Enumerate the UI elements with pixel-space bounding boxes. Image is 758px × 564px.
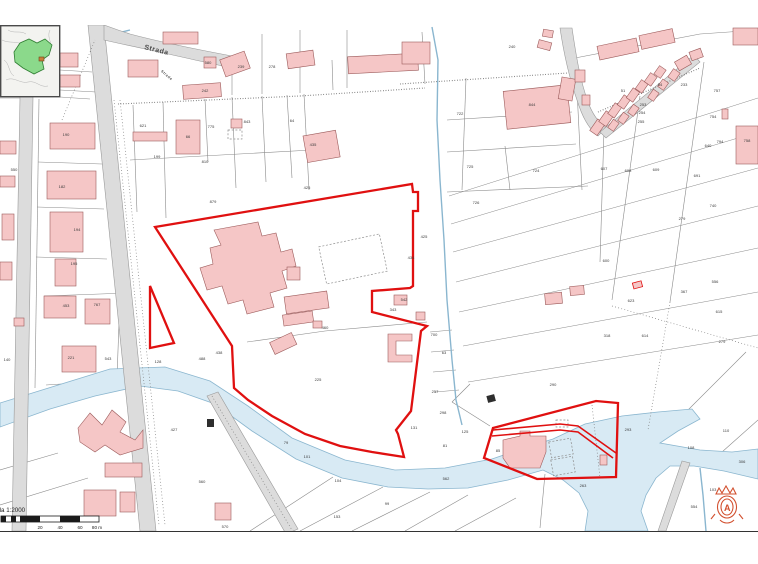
- parcel-number: 562: [443, 476, 450, 481]
- parcel-number: 242: [202, 88, 209, 93]
- parcel-number: 621: [140, 123, 147, 128]
- parcel-number: 306: [739, 459, 746, 464]
- parcel-number: 460: [322, 325, 329, 330]
- parcel-number: 453: [63, 303, 70, 308]
- parcel-number: 81: [443, 443, 448, 448]
- parcel-number: 570: [222, 524, 229, 529]
- parcel-number: 279: [679, 216, 686, 221]
- parcel-number: 427: [171, 427, 178, 432]
- parcel-number: 554: [691, 504, 698, 509]
- parcel-number: 435: [310, 142, 317, 147]
- parcel-number: 66: [186, 134, 191, 139]
- scale-tick-label: 40: [57, 525, 63, 530]
- parcel-number: 239: [238, 64, 245, 69]
- parcel-number: 63: [442, 350, 447, 355]
- scale-tick-label: 20: [37, 525, 43, 530]
- scale-text: Scala 1:2000: [0, 507, 26, 514]
- parcel-number: 700: [431, 332, 438, 337]
- cadastral-map: 8794254254345423437002254601312572986381…: [0, 0, 758, 564]
- parcel-number: 722: [457, 111, 464, 116]
- parcel-number: 740: [710, 203, 717, 208]
- parcel-number: 724: [533, 168, 540, 173]
- parcel-number: 425: [304, 185, 311, 190]
- inset-location-marker: [39, 57, 44, 61]
- parcel-number: 255: [638, 119, 645, 124]
- parcel-number: 843: [244, 119, 251, 124]
- parcel-number: 104: [335, 478, 342, 483]
- parcel-number: 754: [710, 114, 717, 119]
- parcel-number: 434: [408, 255, 415, 260]
- parcel-number: 879: [210, 199, 217, 204]
- parcel-number: 600: [603, 258, 610, 263]
- scale-tick-label: 60: [77, 525, 83, 530]
- parcel-number: 560: [199, 479, 206, 484]
- parcel-number: 233: [681, 82, 688, 87]
- parcel-number: 279: [719, 339, 726, 344]
- parcel-number: 367: [681, 289, 688, 294]
- road-name-label: Strada: [160, 69, 173, 81]
- parcel-number: 726: [473, 200, 480, 205]
- parcel-number: 51: [621, 88, 626, 93]
- parcel-number: 79: [284, 440, 289, 445]
- parcel-number: 775: [208, 124, 215, 129]
- parcel-number: 438: [216, 350, 223, 355]
- parcel-number: 844: [529, 102, 536, 107]
- parcel-number: 182: [59, 184, 66, 189]
- parcel-number: 257: [432, 389, 439, 394]
- parcel-number: 550: [11, 167, 18, 172]
- parcel-number: 608: [625, 168, 632, 173]
- parcel-number: 108: [688, 445, 695, 450]
- scale-tick-label: 80 m: [92, 525, 102, 530]
- parcel-number: 225: [315, 377, 322, 382]
- parcel-number: 131: [411, 425, 418, 430]
- parcel-number: 110: [723, 428, 730, 433]
- parcel-number: 607: [601, 166, 608, 171]
- parcel-number: 767: [94, 302, 101, 307]
- parcel-number: 757: [714, 88, 721, 93]
- parcel-number: 758: [744, 138, 751, 143]
- parcel-number: 298: [440, 410, 447, 415]
- parcel-number: 794: [717, 139, 724, 144]
- parcel-number: 263: [580, 483, 587, 488]
- parcel-number: 253: [640, 102, 647, 107]
- parcel-number: 103: [710, 487, 717, 492]
- cadastral-map-page: 8794254254345423437002254601312572986381…: [0, 0, 758, 564]
- parcel-number: 101: [304, 454, 311, 459]
- parcel-number: 318: [604, 333, 611, 338]
- parcel-number: 556: [712, 279, 719, 284]
- parcel-number: 64: [290, 118, 295, 123]
- parcel-number: 488: [199, 356, 206, 361]
- parcel-number: 195: [71, 261, 78, 266]
- parcel-number: 128: [155, 359, 162, 364]
- parcel-number: 140: [4, 357, 11, 362]
- parcel-number: 623: [628, 298, 635, 303]
- parcel-number: 194: [74, 227, 81, 232]
- parcel-number: 691: [694, 173, 701, 178]
- parcel-number: 199: [154, 154, 161, 159]
- parcel-number: 221: [68, 355, 75, 360]
- parcel-number: 725: [467, 164, 474, 169]
- parcel-number: 290: [550, 382, 557, 387]
- parcel-number: 190: [63, 132, 70, 137]
- parcel-number: 640: [705, 143, 712, 148]
- parcel-number: 543: [105, 356, 112, 361]
- parcel-number: 278: [269, 64, 276, 69]
- road-far-left: [12, 97, 33, 531]
- parcel-number: 153: [334, 514, 341, 519]
- parcel-number: 240: [509, 44, 516, 49]
- factory-building: [200, 222, 296, 314]
- parcel-number: 425: [421, 234, 428, 239]
- drainage-channel: [432, 27, 462, 425]
- parcel-number: 810: [202, 159, 209, 164]
- red-boundaries: [150, 184, 618, 479]
- parcel-number: 85: [496, 448, 501, 453]
- road-main-left: [88, 25, 156, 531]
- parcel-number: 293: [625, 427, 632, 432]
- inset-locator-map: [1, 26, 60, 97]
- parcel-number: 99: [385, 501, 390, 506]
- parcel-number: 614: [642, 333, 649, 338]
- parcel-number: 125: [462, 429, 469, 434]
- parcel-number: 615: [716, 309, 723, 314]
- parcel-number: 343: [390, 307, 397, 312]
- parcel-number: 609: [653, 167, 660, 172]
- secondary-parcel-building: [503, 431, 546, 468]
- parcel-number: 580: [205, 60, 212, 65]
- red-boundary-triangle: [150, 286, 174, 348]
- stamp-letter: A: [724, 503, 731, 513]
- parcel-number: 542: [401, 297, 408, 302]
- parcel-number: 254: [639, 110, 646, 115]
- parcel-number: 54: [658, 82, 663, 87]
